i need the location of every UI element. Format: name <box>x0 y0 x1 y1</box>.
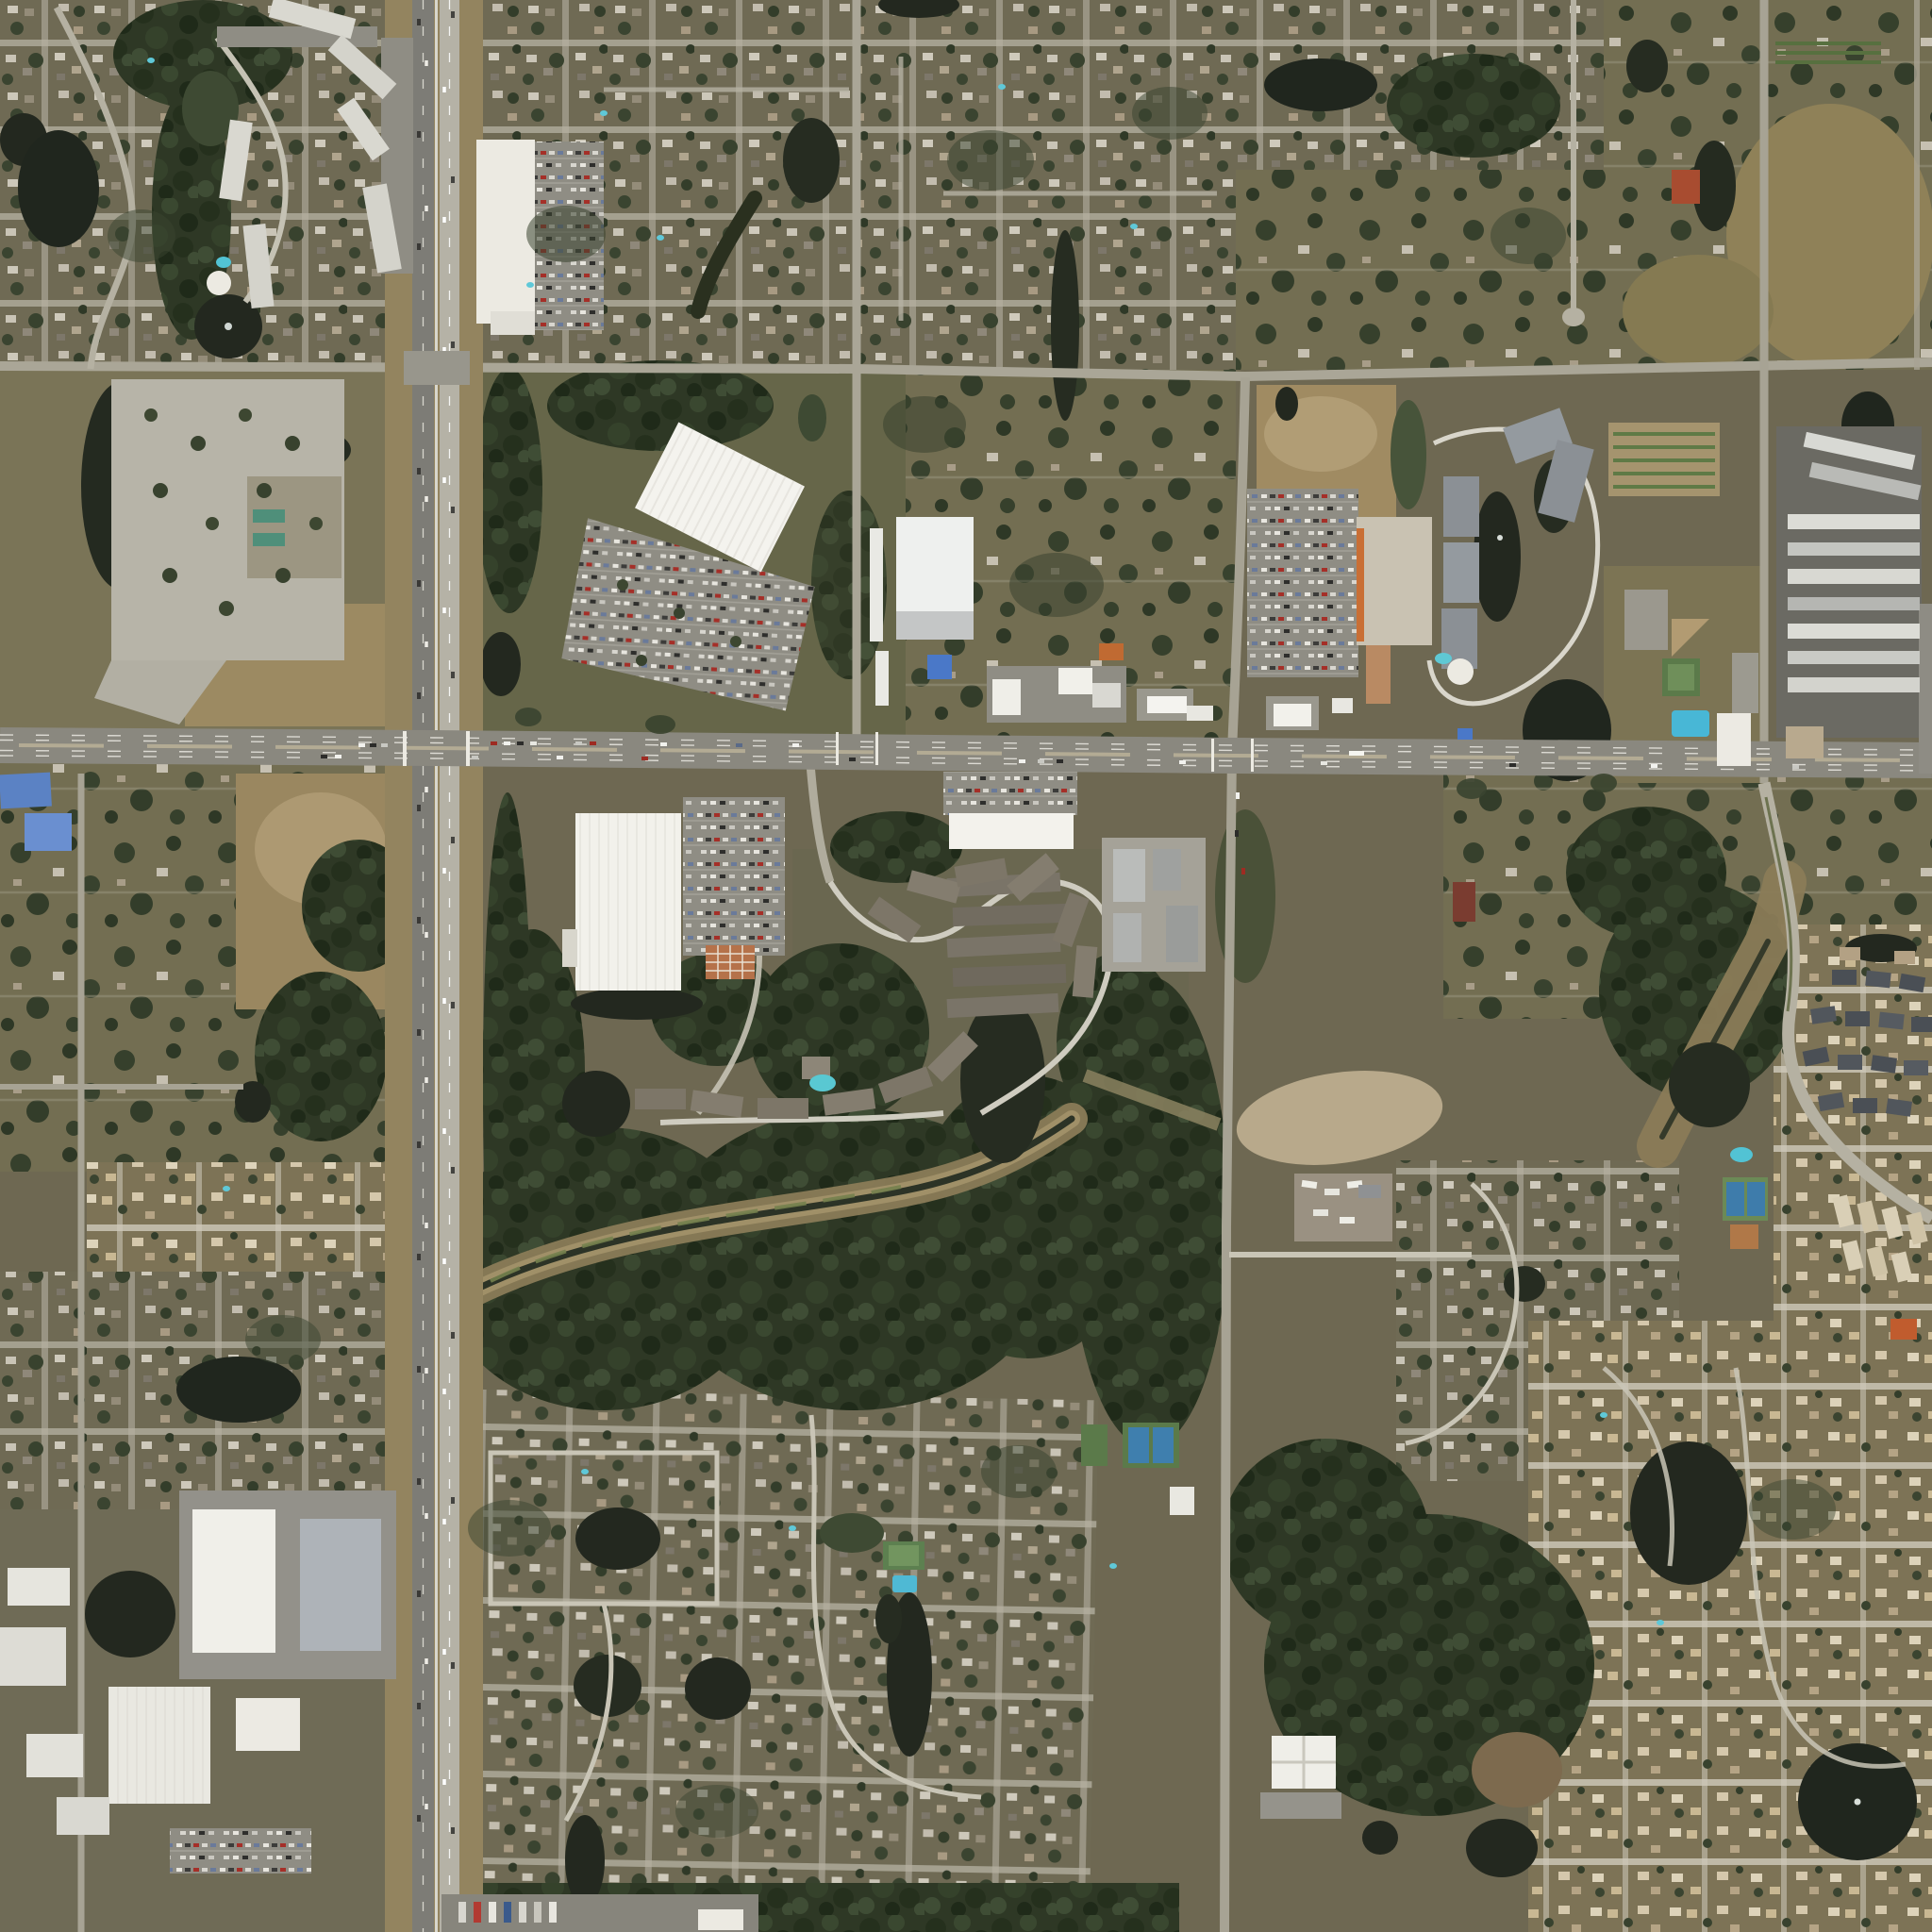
shop-north-5 <box>1332 698 1353 713</box>
crosswalk-hwy-w <box>403 731 407 766</box>
contractor-bldg-3 <box>1113 913 1141 962</box>
backyard-pool-4 <box>998 84 1006 90</box>
suburb-canopy-6 <box>981 1445 1057 1498</box>
storage-row-1 <box>1788 514 1920 529</box>
pond-subdiv-a <box>575 1507 660 1570</box>
satellite-map-viewport[interactable] <box>0 0 1932 1932</box>
bigbox-south-dock <box>562 929 577 967</box>
forest-right-creek-n <box>1566 807 1726 939</box>
truck-bottom-1 <box>458 1902 466 1923</box>
trailer-5 <box>1340 1217 1355 1224</box>
fancy-home-r2b <box>1845 1011 1870 1026</box>
lot-tree-row-4 <box>285 436 300 451</box>
truck-bottom-4 <box>504 1902 511 1923</box>
truck-bottom-6 <box>534 1902 541 1923</box>
apartment-parking-north <box>217 26 377 47</box>
fountain-apartment-pond <box>225 323 232 330</box>
fancy-home-r1b <box>1865 971 1891 989</box>
fancy-dirt-lot-2 <box>1894 951 1915 964</box>
car-b3 <box>472 756 478 759</box>
hotel-blue-canopy <box>1457 728 1473 740</box>
car-b12 <box>1509 763 1516 767</box>
wallot-tree-3 <box>730 636 741 647</box>
lot-tree-row-5 <box>153 483 168 498</box>
backyard-pool-3 <box>526 282 534 288</box>
strip-mall-south-roof <box>949 813 1074 849</box>
park-parking-right <box>1732 653 1758 713</box>
contractor-bldg-1 <box>1113 849 1145 902</box>
shopping-right-parking <box>1247 489 1358 677</box>
car-a9 <box>590 741 596 745</box>
lot-tree-row-7 <box>257 483 272 498</box>
suburb-canopy-3 <box>108 209 175 262</box>
pond-south-of-store <box>571 988 703 1020</box>
truck-arterial <box>1349 751 1364 756</box>
crosswalk-roadB-w <box>836 732 839 765</box>
church-parking-bottom <box>1260 1792 1341 1819</box>
canal-pond-hwy-east <box>481 632 521 696</box>
storage-row-2 <box>1788 542 1920 556</box>
yard-shed-grey <box>1358 1185 1381 1198</box>
tennis-blue-1b <box>1153 1427 1174 1463</box>
kidney-pond-topmid <box>783 118 840 203</box>
pool-fancy-subdiv <box>1730 1147 1753 1162</box>
car-a7 <box>530 741 537 745</box>
lot-tree-row-10 <box>219 601 234 616</box>
arterial-tree-3 <box>1457 778 1487 799</box>
white-bldg-bottom <box>698 1909 743 1930</box>
condo-bldg-7 <box>635 1089 686 1109</box>
suburb-canopy-10 <box>883 396 966 453</box>
blue-roof-small-store <box>927 655 952 679</box>
fancy-home-r3d <box>1904 1060 1928 1075</box>
fancy-home-r4b <box>1853 1098 1877 1113</box>
store2-east-roof <box>896 517 974 611</box>
car-b2 <box>335 755 341 758</box>
estates-top-right-mid <box>1236 170 1604 370</box>
backyard-pool-2 <box>657 235 664 241</box>
suburb-canopy-1 <box>526 206 606 262</box>
storage-row-5 <box>1788 624 1920 639</box>
car-a3 <box>381 743 388 747</box>
car-a12 <box>792 743 799 747</box>
lake-br2-fountain <box>1855 1799 1861 1806</box>
car-b7 <box>1019 759 1025 763</box>
forest-mid-right-2 <box>1222 1439 1429 1637</box>
arterial-tree-4 <box>1591 774 1617 792</box>
suburb-canopy-5 <box>468 1500 551 1557</box>
pond-vertical-topmid <box>1051 230 1079 421</box>
car-a1 <box>358 743 365 747</box>
clubhouse-fancy-subdiv <box>1730 1224 1758 1249</box>
car-a6 <box>517 741 524 745</box>
basketball-court-park <box>1624 590 1668 650</box>
crosswalk-roadC-w <box>1211 739 1214 772</box>
forest-north-of-store <box>547 360 774 451</box>
gas-canopy-east <box>1274 704 1311 726</box>
lap-pool-park <box>1672 710 1709 737</box>
tennis-blue-1a <box>1128 1427 1149 1463</box>
suburb-canopy-4 <box>1132 87 1207 140</box>
storage-strip-2 <box>875 651 889 706</box>
tennis-court-park-inner <box>1668 664 1694 691</box>
satellite-view-page: { "view": {"kind": "aerial-satellite-ort… <box>0 0 1932 1932</box>
storage-row-4 <box>1788 597 1920 610</box>
condo-bldg-9 <box>758 1098 808 1119</box>
lot-tree-row-1 <box>144 408 158 422</box>
pond-L-field-corner <box>1275 387 1298 421</box>
satellite-canvas[interactable] <box>0 0 1932 1932</box>
pond-east-marsh <box>1669 1042 1750 1127</box>
pond-bottomright-1 <box>1630 1441 1747 1585</box>
pond-subdiv-d <box>565 1815 605 1906</box>
warehouse-grey <box>300 1519 381 1651</box>
pond-subdiv-b <box>685 1657 751 1720</box>
contractor-bldg-2 <box>1153 849 1181 891</box>
car-b1 <box>321 755 327 758</box>
suburb-canopy-2 <box>947 130 1034 191</box>
pond-bottomright-small <box>1362 1821 1398 1855</box>
tennis-bm-inner <box>889 1545 919 1566</box>
apartments-south-row-2 <box>953 904 1067 926</box>
arterial-tree-2 <box>645 715 675 734</box>
lot-tree-row-9 <box>162 568 177 583</box>
car-a2 <box>370 743 376 747</box>
wallot-tree-4 <box>636 655 647 666</box>
bigbox-south-parking <box>683 797 785 956</box>
lake-topleft <box>18 130 99 247</box>
pond-green-nursery <box>1391 400 1426 509</box>
trees-north-of-condos <box>830 811 962 883</box>
fancy-dirt-lot-1 <box>1840 947 1860 960</box>
trailer-2 <box>1324 1189 1340 1195</box>
shop-north-2 <box>1058 668 1092 694</box>
shop-north-4 <box>1187 706 1213 721</box>
tennis-green-left <box>1081 1424 1108 1466</box>
storage-row-6 <box>1788 651 1920 664</box>
car-b14 <box>1792 765 1799 769</box>
highway <box>385 0 483 1932</box>
pond-roadC-lot <box>1504 1266 1545 1302</box>
fancy-home-r1a <box>1832 970 1857 985</box>
apartment-pool <box>216 257 231 268</box>
pasture-right-top2 <box>1623 255 1774 368</box>
arterial-tree-1 <box>515 708 541 726</box>
crosswalk-roadC-e <box>1251 739 1254 772</box>
pond-warehouse <box>85 1571 175 1657</box>
suburb-canopy-11 <box>1009 553 1104 617</box>
industrial-left-1 <box>8 1568 70 1606</box>
lot-tree-row-6 <box>206 517 219 530</box>
car-a10 <box>660 742 667 746</box>
store-top-roof <box>476 140 535 324</box>
car-b6 <box>849 758 856 761</box>
car-a5 <box>504 741 510 745</box>
hotel-bldg-w2 <box>1443 542 1479 603</box>
tennis-blue-2b <box>1747 1182 1765 1216</box>
hotel-pond-fountain <box>1497 535 1503 541</box>
gas-canopy-west <box>1147 696 1187 713</box>
suburb-canopy-7 <box>245 1315 321 1364</box>
condo-bldg-6 <box>1073 945 1098 998</box>
estate-red-roof <box>1672 170 1700 204</box>
home-improvement-right-roof <box>1357 517 1432 645</box>
car-a8 <box>575 741 582 745</box>
car-b11 <box>1321 761 1327 765</box>
suburb-top-middle-east <box>857 0 1236 370</box>
car-b10 <box>1179 760 1186 764</box>
orange-tile-house-br <box>1890 1319 1917 1340</box>
car-b5 <box>641 757 648 760</box>
storage-office <box>1786 726 1824 758</box>
store-top-wing <box>491 311 535 335</box>
industrial-left-3 <box>26 1734 83 1777</box>
blue-roof-church-2 <box>25 813 72 851</box>
apartment-clubhouse-roof <box>207 271 231 295</box>
shop-north-3 <box>1092 683 1121 708</box>
warehouse-white-1 <box>192 1509 275 1653</box>
crosswalk-hwy-e <box>466 731 470 766</box>
storage-row-7 <box>1788 677 1920 692</box>
backyard-pool-11 <box>223 1186 230 1191</box>
car-b9 <box>1057 759 1063 763</box>
backyard-pool-7 <box>581 1469 589 1474</box>
industrial-left-4 <box>57 1797 109 1835</box>
fancy-home-r3b <box>1838 1055 1862 1070</box>
condo-pool <box>809 1074 836 1091</box>
contractor-bldg-4 <box>1166 906 1198 962</box>
debris-lot <box>1472 1732 1562 1807</box>
truck-bottom-5 <box>519 1902 526 1923</box>
court-park-bldg <box>1170 1487 1194 1515</box>
suburb-canopy-9 <box>1491 208 1566 264</box>
stripmall-parking <box>943 772 1077 815</box>
roadA-highway-intersection <box>404 351 470 385</box>
office-teal-roof-1 <box>253 509 285 523</box>
car-b4 <box>557 756 563 759</box>
car-b8 <box>1038 759 1044 763</box>
truck-bottom-2 <box>474 1902 481 1923</box>
trailer-4 <box>1313 1209 1328 1216</box>
backyard-pool-10 <box>1657 1620 1664 1625</box>
warehouse-white-3 <box>236 1698 300 1751</box>
backyard-pool-12 <box>1109 1563 1117 1569</box>
scrub-field-east-of-roadC <box>1215 809 1275 983</box>
park-building <box>1717 713 1751 766</box>
car-lot-bottom-left <box>170 1828 311 1874</box>
car-b13 <box>1651 764 1657 768</box>
lot-tree-row-3 <box>239 408 252 422</box>
pond-estates-topright <box>1626 40 1668 92</box>
suburb-canopy-12 <box>675 1785 758 1838</box>
store2-loading <box>896 611 974 640</box>
forest-left-corridor <box>255 972 387 1141</box>
fancy-home-r2c <box>1878 1012 1905 1030</box>
highway-median-barrier <box>435 0 438 1932</box>
garden-center-right <box>1366 645 1391 704</box>
office-teal-roof-2 <box>253 533 285 546</box>
suburb-canopy-8 <box>1749 1479 1836 1540</box>
tennis-blue-2a <box>1726 1182 1744 1216</box>
hotel-clubhouse-roof <box>1447 658 1474 685</box>
backyard-pool-5 <box>1130 224 1138 229</box>
lot-tree-row-8 <box>309 517 323 530</box>
forest-highway-east-strip <box>476 368 542 613</box>
car-c3 <box>1241 868 1245 874</box>
lot-tree-row-11 <box>275 568 291 583</box>
lake-left-bottom <box>176 1357 301 1423</box>
backyard-pool-8 <box>789 1525 796 1531</box>
pond-triangle-sw <box>562 1071 630 1137</box>
wallot-tree-1 <box>617 579 628 591</box>
home-improvement-orange-front <box>1357 528 1364 641</box>
backyard-pool-9 <box>1600 1412 1607 1418</box>
pond-subdiv-cul <box>875 1594 902 1643</box>
fancy-home-r2d <box>1911 1017 1932 1032</box>
storage-row-3 <box>1788 569 1920 584</box>
truck-bottom-3 <box>489 1902 496 1923</box>
wallot-tree-2 <box>674 608 685 619</box>
car-c2 <box>1235 830 1239 837</box>
hotel-bldg-w1 <box>1443 476 1479 537</box>
warehouse-white-2-ribs <box>108 1687 210 1804</box>
forest-topright-block <box>1387 54 1560 158</box>
apartments-south-row-4 <box>953 964 1067 987</box>
red-bldg-roadC <box>1453 882 1475 922</box>
pond-forest-bottom <box>1466 1819 1538 1877</box>
pond-ne-of-store <box>798 394 826 441</box>
crosswalk-roadB-e <box>875 732 878 765</box>
storage-strip-1 <box>870 528 883 641</box>
culdesac-topright <box>1562 308 1585 326</box>
lot-tree-row-2 <box>191 436 206 451</box>
new-subdivision-left <box>87 1162 408 1272</box>
car-a4 <box>491 741 497 745</box>
right-edge-lot <box>1919 604 1932 774</box>
bigbox-south-roof-ribs <box>575 813 681 991</box>
industrial-left-2 <box>0 1627 66 1686</box>
lake-topright <box>1264 58 1377 111</box>
hotel-pool <box>1435 653 1452 664</box>
backyard-pool-1 <box>600 110 608 116</box>
hotel-pond-1 <box>1474 491 1521 622</box>
blue-roof-church-1 <box>0 773 52 809</box>
truck-bottom-7 <box>549 1902 557 1923</box>
pool-bottom-mid <box>892 1575 917 1592</box>
pond-subdiv-green <box>820 1513 884 1553</box>
shop-north-1 <box>992 679 1021 715</box>
orange-roof-house <box>1099 643 1124 660</box>
car-a11 <box>736 743 742 747</box>
car-c1 <box>1236 792 1240 799</box>
backyard-pool-6 <box>147 58 155 63</box>
